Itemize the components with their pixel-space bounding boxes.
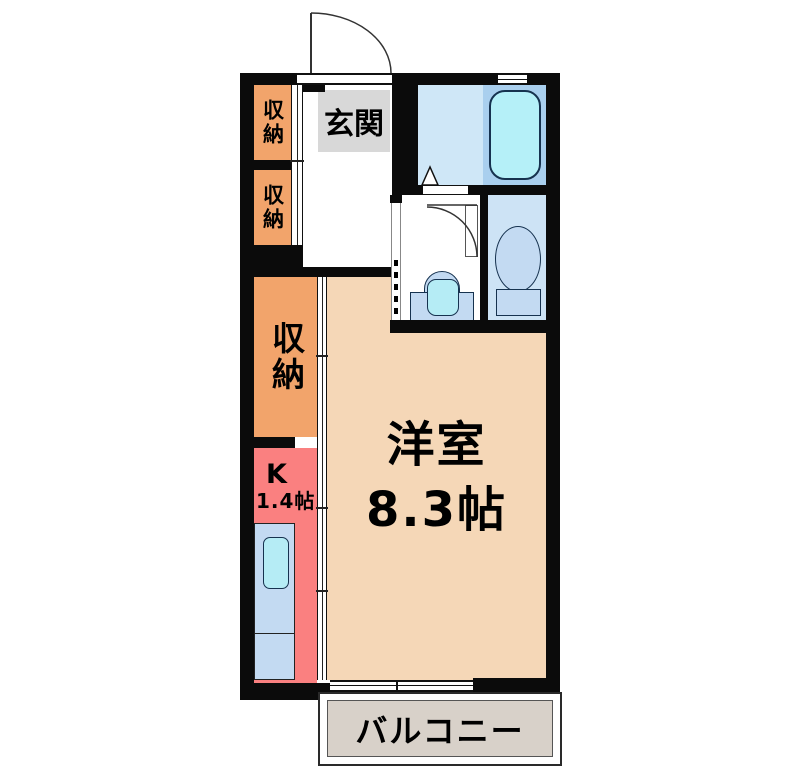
closet-main-label: 収納 [254,277,317,437]
kitchen-label: K 1.4帖 [256,459,318,513]
wall-top-mid [392,73,498,85]
wall-washroom-toilet [480,195,488,320]
floor-plan: バルコニー 玄関 収納 収納 収納 K 1.4帖 洋室 8.3帖 [0,0,800,784]
balcony-label: バルコニー [355,706,524,752]
entrance-opening [297,73,392,85]
closet-sliding-door-track [291,85,303,245]
bathroom-floor [418,85,483,185]
entrance-door [311,13,391,73]
wall-closet2-bottom [254,245,303,267]
wall-left [240,73,254,700]
kitchen-label-size: 1.4帖 [256,490,318,513]
kitchen-label-k: K [266,459,318,490]
wall-hall-bath [392,85,418,195]
bathroom-door-opening [423,185,468,195]
western-room-name: 洋室 [386,413,486,478]
balcony-window [330,680,473,692]
washroom-left-partition [391,203,401,320]
closet-upper-2-label: 収納 [254,170,291,245]
toilet-bowl [495,226,541,292]
bathtub [489,90,541,180]
wall-bottom-left [240,683,330,700]
toilet-tank [496,289,541,316]
genkan-label: 玄関 [318,90,390,152]
wall-closet-main-bottom [254,437,295,448]
room-sliding-door-track [317,277,327,680]
kitchen-sink [263,537,289,589]
western-room-floor-notch [327,277,391,337]
wall-bath-bottom-right [468,185,553,195]
wall-right [546,73,560,692]
toilet-door-leaf [465,205,478,257]
wall-washroom-bottom [390,320,553,333]
balcony-area: バルコニー [327,700,553,757]
western-room-size: 8.3帖 [366,478,507,543]
bathroom-window [498,73,527,85]
wall-closet-divider [254,160,291,170]
western-room-label: 洋室 8.3帖 [327,398,546,558]
wall-washroom-left-stub [390,195,402,203]
wall-hall-bottom [254,267,395,277]
washbasin-bowl [427,279,459,316]
closet-upper-1-label: 収納 [254,85,291,160]
wall-bath-bottom-left [397,185,423,195]
wall-bottom-right [473,678,560,692]
